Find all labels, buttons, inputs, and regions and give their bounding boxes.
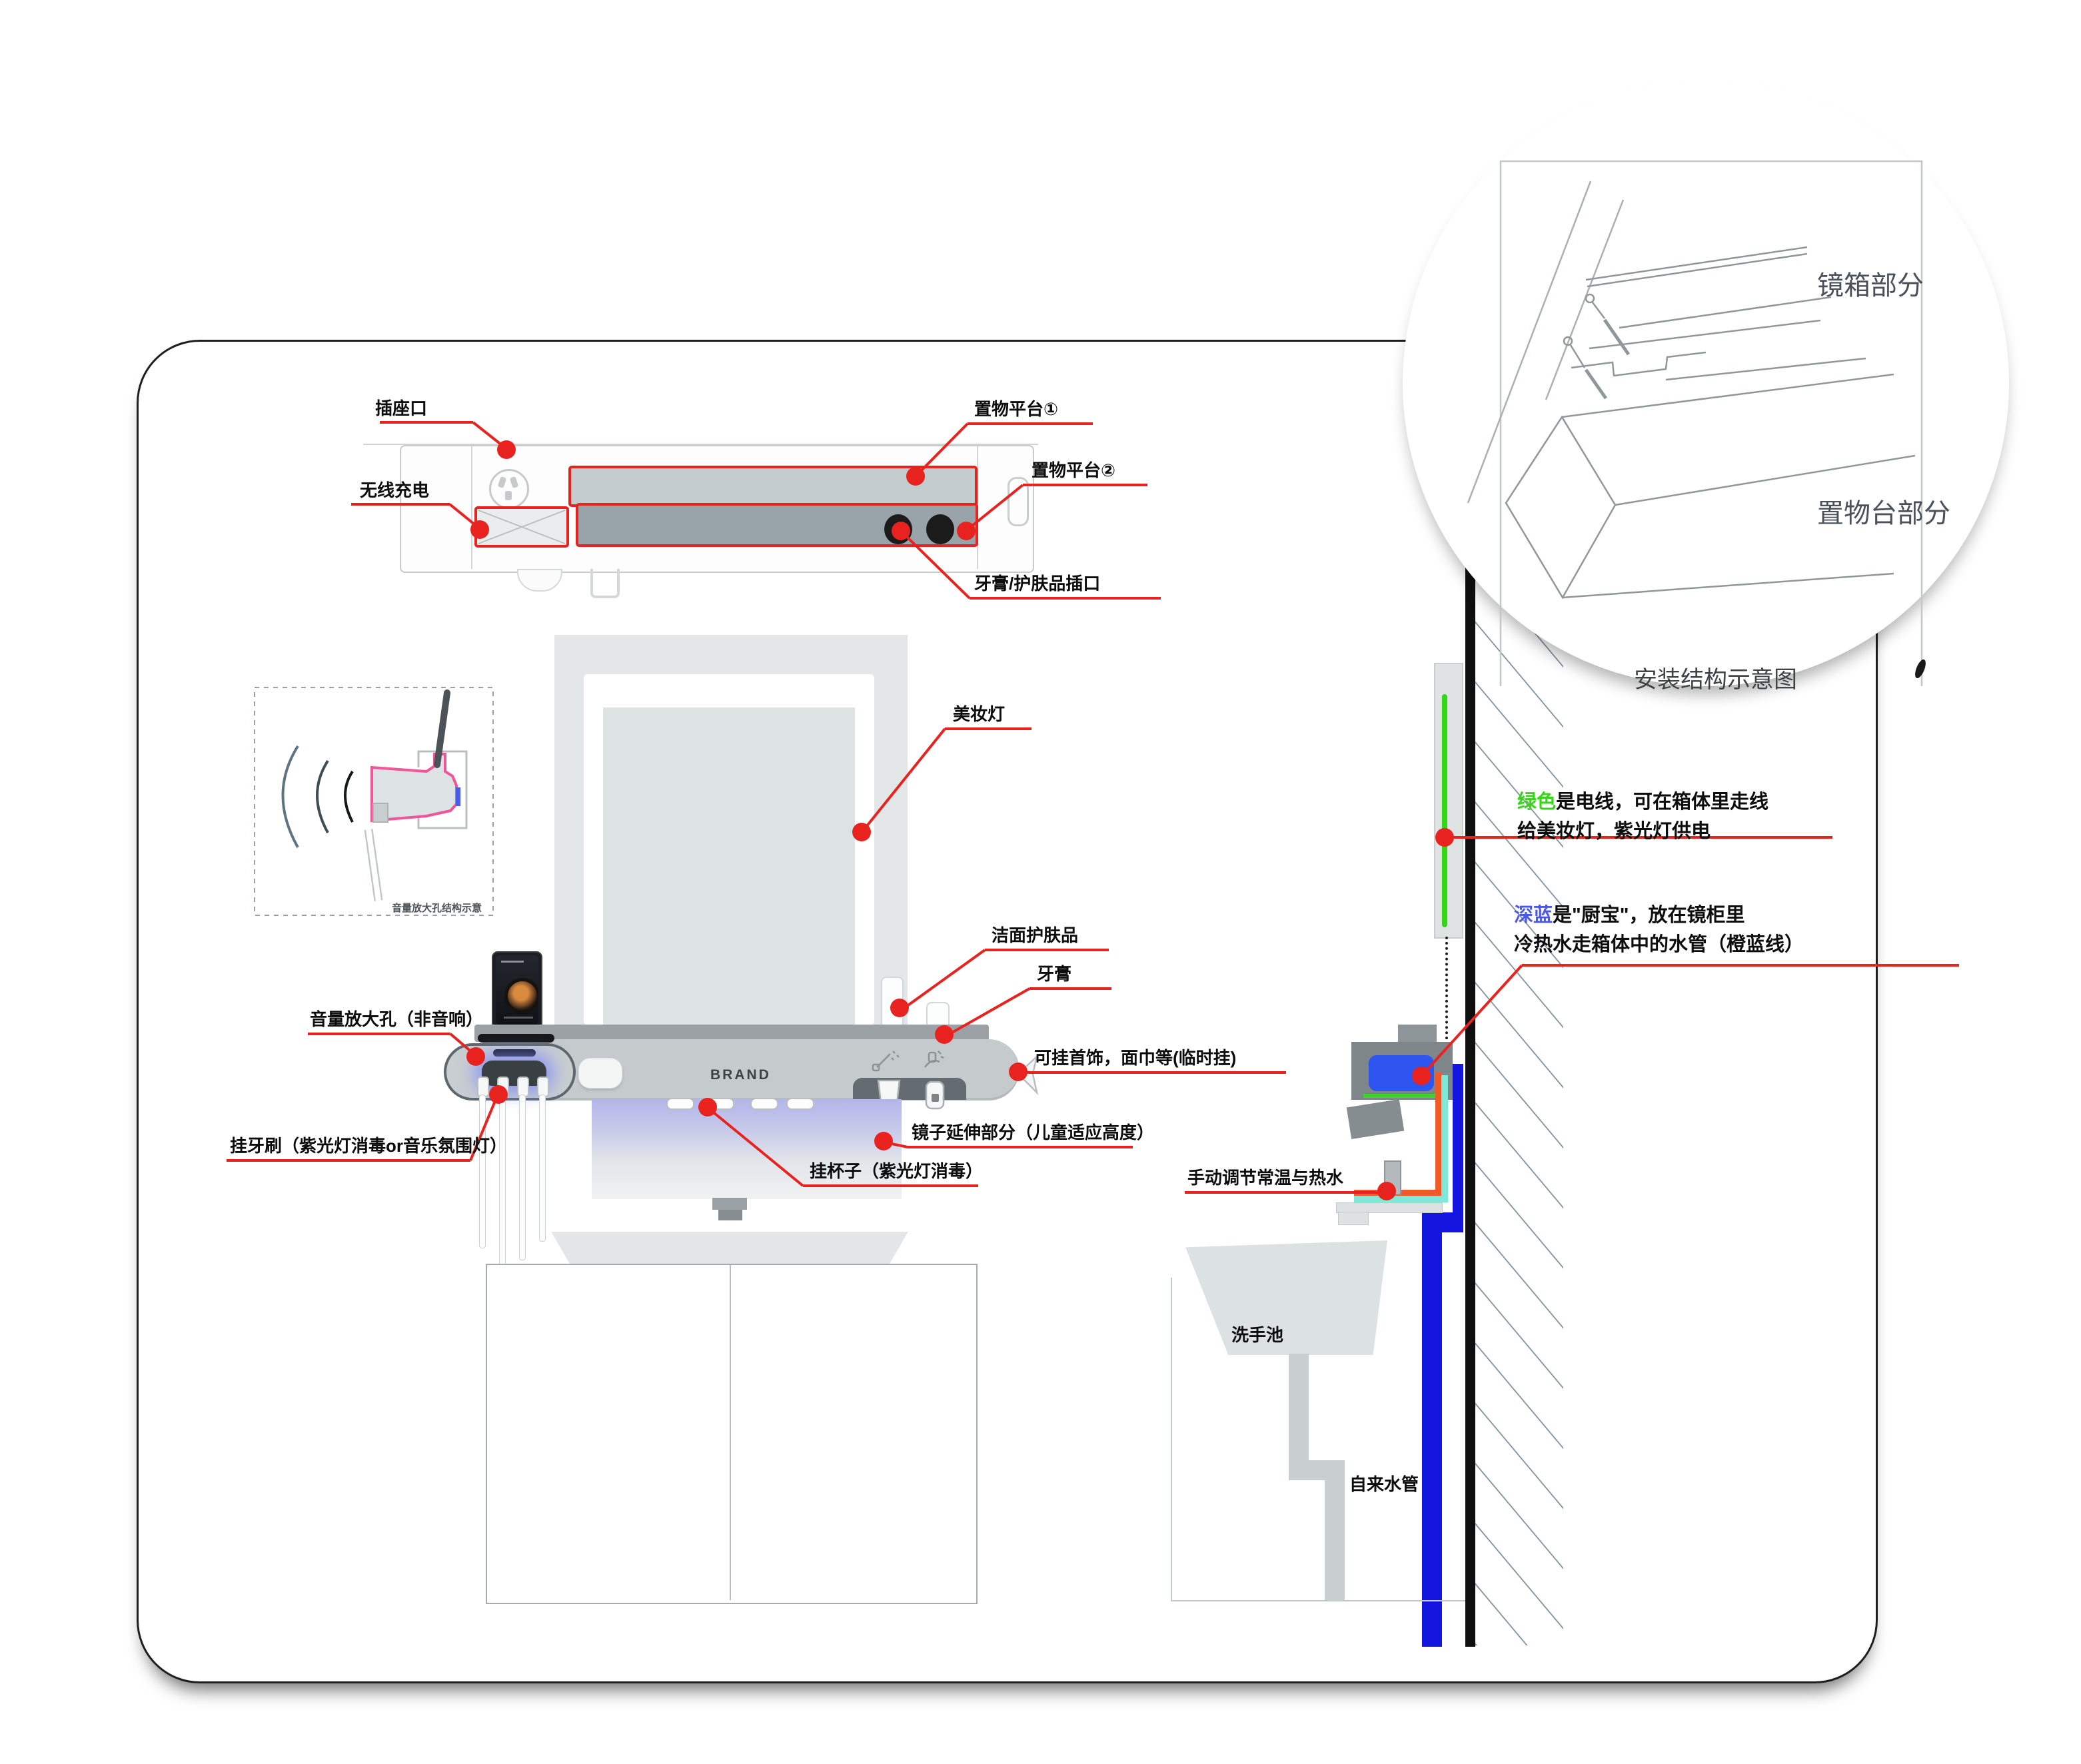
paste-hole-2 [926, 514, 954, 544]
hang-items-label: 可挂首饰，面巾等(临时挂) [1034, 1047, 1236, 1069]
wall [1465, 563, 1475, 1647]
valve-base-step [1338, 1212, 1369, 1225]
valve-label: 手动调节常温与热水 [1187, 1167, 1343, 1189]
wire-note: 绿色是电线，可在箱体里走线 给美妆灯，紫光灯供电 [1517, 787, 1768, 846]
design-diagram-canvas: 音量放大孔结构示意 BRAND [0, 0, 2081, 1764]
makeup-light-label: 美妆灯 [953, 703, 1005, 725]
sound-wave-middle [317, 761, 328, 833]
wire-note-colored-word: 绿色 [1517, 791, 1556, 813]
bracket-profile [1571, 352, 1706, 376]
side-counter-bottom [1171, 1600, 1465, 1601]
socket-pin [505, 491, 512, 500]
water-heater-tank [1369, 1055, 1434, 1091]
platform2-label: 置物平台② [1032, 460, 1115, 482]
hang-toothbrush-label: 挂牙刷（紫光灯消毒or音乐氛围灯） [230, 1135, 507, 1157]
hot-water-pipe-vertical [1435, 1073, 1441, 1194]
cabinet-side-panel [1434, 663, 1463, 939]
phone-ui-line [501, 961, 524, 963]
socket-circle [489, 469, 529, 509]
mirror-box-part-label: 镜箱部分 [1817, 264, 1924, 302]
skincare-hand-icon [925, 1051, 944, 1067]
cup-clip [786, 1098, 814, 1110]
volume-inset-caption: 音量放大孔结构示意 [392, 901, 482, 915]
sound-wave-inner [345, 771, 352, 822]
under-cabinet [486, 1264, 978, 1604]
toothbrush-handle [539, 1095, 546, 1242]
wire-note-line2: 给美妆灯，紫光灯供电 [1517, 817, 1768, 846]
paste-slot-label: 牙膏/护肤品插口 [974, 573, 1100, 595]
toothbrush-handle [499, 1095, 506, 1268]
heater-note: 深蓝是"厨宝"，放在镜柜里 冷热水走箱体中的水管（橙蓝线） [1514, 901, 1804, 959]
socket-pin [510, 476, 519, 488]
shelf-box [1506, 374, 1915, 598]
cup-clip [706, 1098, 734, 1110]
drain-pipe-lower [1325, 1480, 1345, 1601]
sink-label: 洗手池 [1231, 1324, 1283, 1346]
green-wire [1442, 694, 1447, 927]
top-view-side-tab [1008, 477, 1029, 526]
water-pipe-label: 自来水管 [1349, 1474, 1419, 1496]
heater-note-rest: 是"厨宝"，放在镜柜里 [1553, 905, 1745, 926]
top-view-bracket [590, 569, 620, 598]
mirror-extension-label: 镜子延伸部分（儿童适应高度） [912, 1122, 1154, 1144]
tap-water-pipe-lower [1422, 1232, 1442, 1647]
uv-toothbrush-icon [873, 1051, 899, 1071]
volume-inset-drawing [250, 683, 503, 924]
socket-pin [498, 476, 507, 488]
dispenser-button [578, 1058, 622, 1089]
volume-hole-label: 音量放大孔（非音响） [310, 1009, 483, 1031]
cold-water-pipe-horizontal [1354, 1196, 1448, 1202]
cleanser-label: 洁面护肤品 [992, 925, 1078, 947]
hang-cup-label: 挂杯子（紫光灯消毒） [810, 1160, 983, 1182]
inset-frame [1501, 161, 1922, 686]
cold-water-pipe-vertical [1441, 1075, 1448, 1200]
platform1-label: 置物平台① [974, 398, 1058, 420]
top-view-divider-left [471, 446, 472, 569]
wall-hatching [1475, 563, 1563, 1645]
toothbrush-handle [519, 1095, 526, 1260]
cabinet-door-divider [730, 1265, 731, 1600]
cup-clip [750, 1098, 778, 1110]
wireless-x-pattern [477, 509, 566, 545]
sound-wave-outer [283, 746, 299, 847]
phone-screen [496, 955, 538, 1025]
drain-pipe-step [1289, 1460, 1345, 1480]
shelf-platform-2 [576, 503, 978, 547]
extension-drain-step1 [712, 1198, 747, 1210]
side-counter-edge [1171, 1278, 1172, 1601]
heater-note-line2: 冷热水走箱体中的水管（橙蓝线） [1514, 930, 1804, 959]
mounting-screws [1564, 294, 1629, 398]
phone [492, 951, 542, 1029]
toothpaste-label: 牙膏 [1037, 963, 1071, 985]
mirror-extension [592, 1099, 902, 1199]
cup-clip [666, 1098, 694, 1110]
socket-label: 插座口 [375, 398, 427, 420]
bottle-label [932, 1094, 939, 1102]
mirror-panel [603, 707, 855, 1025]
drain-pipe-upper [1289, 1354, 1309, 1468]
heater-note-colored-word: 深蓝 [1514, 905, 1553, 926]
paste-hole-1 [884, 514, 912, 544]
installation-inset [1403, 80, 2009, 686]
heater-top-box [1398, 1025, 1437, 1043]
inset-mark [1913, 658, 1928, 679]
wireless-label: 无线充电 [360, 480, 429, 502]
toothbrush-handle [479, 1095, 486, 1248]
phone-ui-line [504, 1017, 533, 1019]
horn-mouth-block [373, 803, 388, 822]
tap-water-pipe-elbow [1422, 1212, 1463, 1232]
shelf-icons [868, 1047, 952, 1074]
speaker-slot [478, 1034, 554, 1043]
phone-album-art [504, 978, 538, 1014]
heater-green-wire [1363, 1094, 1435, 1098]
wire-note-rest: 是电线，可在箱体里走线 [1556, 791, 1768, 813]
installation-drawing [1403, 80, 2009, 686]
sink-front [540, 1232, 920, 1264]
wall-edge-line2 [1546, 200, 1623, 400]
tap-water-pipe-upper [1453, 1064, 1463, 1224]
extension-drain-step2 [718, 1210, 742, 1220]
brand-logo: BRAND [710, 1067, 771, 1083]
wireless-charging-pad [474, 506, 569, 548]
installation-caption: 安装结构示意图 [1634, 661, 1797, 695]
holder-slot [493, 1049, 536, 1057]
manual-valve-handle [1384, 1160, 1401, 1195]
horn-blue-accent [456, 787, 460, 806]
shelf-platform-1 [568, 466, 978, 507]
shelf-part-label: 置物台部分 [1817, 492, 1950, 530]
